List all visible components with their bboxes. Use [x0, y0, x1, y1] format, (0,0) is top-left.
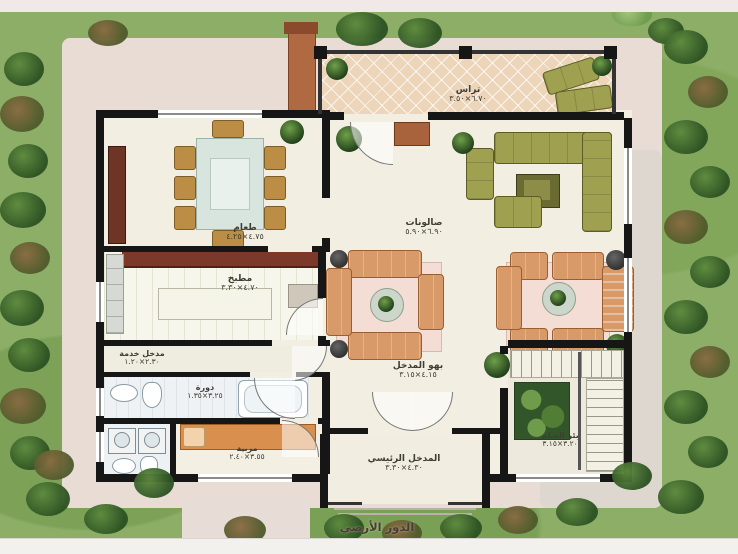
tree-icon	[10, 242, 50, 274]
wall	[322, 238, 330, 252]
side-table	[330, 250, 348, 268]
wall	[624, 118, 632, 148]
washer-door	[144, 432, 160, 448]
window	[96, 432, 104, 462]
wall	[428, 112, 624, 120]
wall	[500, 388, 508, 474]
kitchen-island	[158, 288, 272, 320]
tree-icon	[0, 388, 46, 424]
wall	[96, 416, 104, 432]
wall	[96, 110, 158, 118]
tree-icon	[556, 498, 598, 526]
dining-chair	[174, 176, 196, 200]
tree-icon	[664, 120, 708, 154]
window	[96, 388, 104, 416]
tree-icon	[664, 30, 708, 64]
wall	[508, 340, 632, 348]
cabinet	[394, 122, 430, 146]
tree-icon	[664, 300, 708, 334]
wall	[292, 474, 320, 482]
sofa-orange	[348, 250, 422, 278]
planter-cap	[284, 22, 318, 34]
wall	[96, 110, 104, 282]
kitchen-appliances	[106, 254, 124, 334]
side-table	[606, 250, 626, 270]
dining-chair	[264, 146, 286, 170]
porch-floor	[328, 434, 482, 504]
wall	[322, 118, 330, 198]
tree-icon	[664, 390, 708, 424]
wall	[170, 424, 176, 474]
pillar	[459, 46, 472, 59]
sofa-orange	[552, 252, 604, 280]
dining-table-top	[210, 158, 250, 210]
entrance-step	[334, 508, 476, 510]
tree-icon	[498, 506, 538, 534]
tree-icon	[336, 12, 388, 46]
tree-icon	[688, 436, 728, 468]
wall-thin	[612, 50, 616, 114]
wall	[500, 346, 508, 354]
sink	[112, 458, 136, 474]
kitchen-counter	[122, 252, 318, 268]
window	[198, 474, 292, 482]
floor-plan: طعام ٤.٧٥×٤.٢٥ صالونات ٦.٩٠×٥.٩٠ مطبخ ٤.…	[0, 0, 738, 554]
pillar	[604, 46, 617, 59]
tree-icon	[664, 210, 708, 244]
sofa-olive	[582, 132, 612, 232]
wall-thin	[448, 502, 482, 505]
tree-icon	[88, 20, 128, 46]
side-table	[330, 340, 348, 358]
window	[96, 282, 104, 322]
plant-icon	[592, 56, 612, 76]
wall-thin	[318, 50, 322, 114]
wall	[104, 246, 268, 252]
sofa-olive	[466, 148, 494, 200]
stair-planting	[514, 382, 570, 440]
plant-icon	[378, 296, 394, 312]
tree-icon	[658, 480, 704, 514]
wall	[104, 372, 250, 377]
stair-run	[510, 350, 624, 378]
window	[516, 474, 600, 482]
stair-rail	[578, 352, 581, 470]
corridor-floor	[104, 346, 322, 372]
bottom-bar	[0, 538, 738, 554]
plant-icon	[484, 352, 510, 378]
pillow	[183, 427, 205, 447]
tree-icon	[612, 462, 652, 490]
tree-icon	[84, 504, 128, 534]
planter-column	[288, 28, 316, 114]
dining-chair	[174, 146, 196, 170]
sofa-olive	[494, 196, 542, 228]
washer-door	[114, 432, 130, 448]
sofa-orange	[418, 274, 444, 330]
tree-icon	[690, 346, 730, 378]
tree-icon	[0, 290, 44, 326]
wall	[104, 418, 280, 424]
stair-run	[586, 378, 624, 472]
sofa-orange	[496, 266, 522, 330]
toilet	[142, 382, 162, 408]
wall	[318, 252, 326, 298]
tree-icon	[8, 144, 48, 178]
dining-chair	[174, 206, 196, 230]
tree-icon	[4, 52, 44, 86]
sofa-orange	[348, 332, 422, 360]
wall	[96, 322, 104, 388]
tree-icon	[0, 96, 44, 132]
plant-icon	[326, 58, 348, 80]
wall	[452, 428, 500, 434]
tree-icon	[0, 192, 46, 228]
wall	[490, 474, 516, 482]
plant-icon	[280, 120, 304, 144]
dining-chair	[212, 120, 244, 138]
tree-icon	[688, 76, 728, 108]
window	[624, 258, 632, 332]
plant-icon	[550, 290, 566, 306]
wall	[624, 224, 632, 258]
pillar	[314, 46, 327, 59]
wall	[330, 428, 368, 434]
tree-icon	[134, 468, 174, 498]
wall	[320, 434, 328, 508]
dining-chair	[264, 206, 286, 230]
tree-icon	[26, 482, 70, 516]
tree-icon	[8, 338, 50, 372]
floor-title: الدور الأرضي	[340, 520, 415, 534]
wall	[330, 112, 344, 120]
sofa-orange	[326, 268, 352, 336]
wall	[482, 434, 490, 508]
window	[158, 110, 262, 118]
tree-icon	[34, 450, 74, 480]
tree-icon	[398, 18, 442, 48]
top-strip	[0, 0, 738, 12]
dining-chair	[264, 176, 286, 200]
plant-icon	[452, 132, 474, 154]
sink	[110, 384, 138, 402]
tree-icon	[690, 256, 730, 288]
wall	[624, 332, 632, 482]
tree-icon	[690, 166, 730, 198]
wall	[104, 340, 272, 346]
sideboard	[108, 146, 126, 244]
wall-thin	[328, 502, 362, 505]
window	[624, 148, 632, 224]
